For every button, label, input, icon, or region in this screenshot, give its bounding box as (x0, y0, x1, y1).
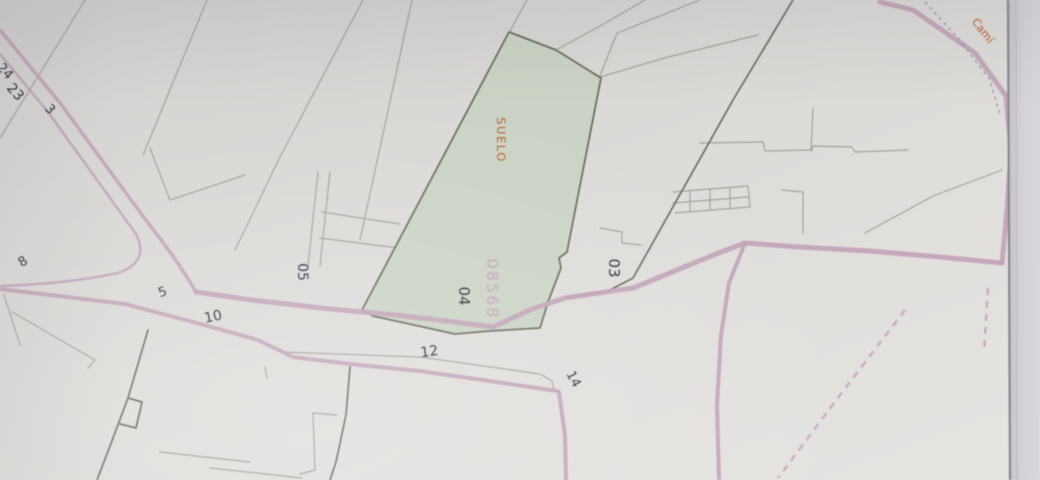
parcel-line (235, 0, 363, 250)
boundary-line-south (330, 367, 350, 480)
parcel-line (322, 212, 400, 224)
building-outline (673, 186, 750, 213)
stepped-parcel-line (600, 228, 641, 245)
path-strip-line (320, 172, 330, 266)
road-topleft-outer (0, 30, 196, 292)
road-south-branch (717, 243, 745, 480)
road-dashed-diagonal (778, 310, 905, 478)
parcel-line (320, 238, 398, 248)
boundary-jog (120, 398, 142, 428)
parcel-line (782, 190, 803, 233)
parcel-label-05: 05 (294, 263, 310, 281)
path-strip-line (308, 172, 318, 266)
parcel-line (265, 367, 267, 378)
house-number-5: 5 (156, 284, 169, 301)
parcel-line (509, 0, 527, 33)
parcel-line (600, 35, 758, 77)
parcel-line (143, 0, 207, 155)
stepped-parcel-line (700, 142, 908, 152)
parcel-line (4, 295, 20, 345)
parcel-line (556, 0, 645, 50)
parcel-line (160, 452, 250, 462)
parcel-line (210, 468, 302, 478)
parcel-line (12, 312, 95, 368)
camino-dashed-line (925, 2, 1000, 115)
parcel-line (300, 413, 315, 474)
highlighted-parcel-suelo (362, 32, 601, 334)
boundary-line-sw (97, 330, 148, 480)
road-dashed-short (984, 288, 988, 352)
house-number-12: 12 (420, 343, 440, 361)
cadastral-map: 08568 SUELO Camí 03 04 05 12 14 (0, 0, 1040, 480)
road-name-label: Camí (969, 16, 997, 47)
parcel-line (360, 0, 412, 240)
boundary-line-main (566, 0, 793, 298)
parcel-line (811, 108, 813, 151)
block-number-label: 08568 (483, 259, 502, 320)
parcel-line (150, 148, 245, 200)
house-number-14: 14 (563, 369, 584, 391)
parcel-line (313, 413, 337, 415)
house-number-10: 10 (203, 307, 224, 326)
parcel-line (865, 170, 1002, 233)
house-number-24: 24 (0, 60, 16, 82)
road-south-branch-2 (559, 392, 566, 480)
zone-label-suelo: SUELO (494, 117, 508, 163)
parcel-label-04: 04 (455, 286, 473, 305)
parcel-line (600, 0, 700, 76)
cadastral-map-photo: 08568 SUELO Camí 03 04 05 12 14 (0, 0, 1040, 480)
road-main-upper (196, 243, 1002, 327)
paper-edge-strip (1009, 0, 1040, 480)
parcel-label-03: 03 (605, 258, 623, 277)
house-number-8: 8 (16, 253, 31, 270)
